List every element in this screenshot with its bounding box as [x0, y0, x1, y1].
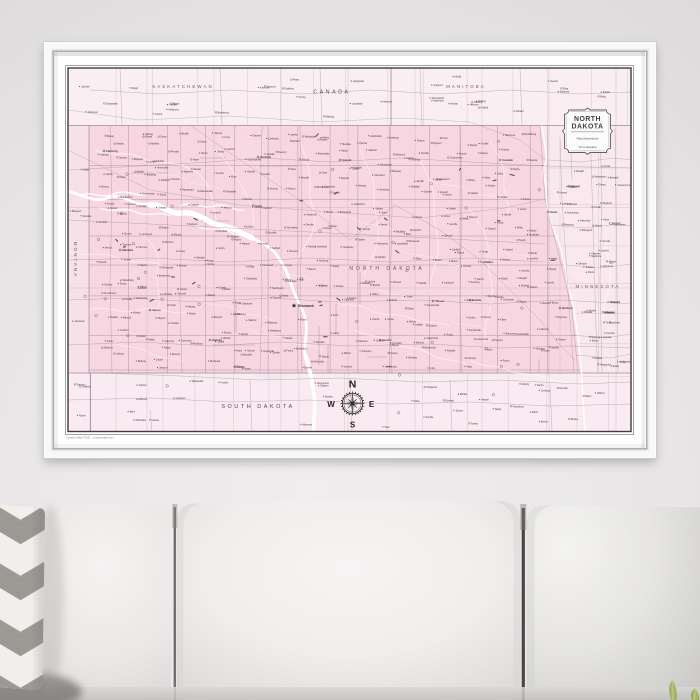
svg-text:Walby: Walby: [148, 339, 155, 341]
svg-text:Watay: Watay: [495, 408, 502, 411]
svg-text:Hazota: Hazota: [359, 142, 367, 145]
svg-text:Kenstanville: Kenstanville: [427, 304, 440, 307]
svg-text:Larburg: Larburg: [116, 353, 125, 356]
svg-text:Kenay: Kenay: [497, 223, 504, 225]
svg-text:Pardale: Pardale: [139, 205, 148, 208]
svg-text:Bismarck: Bismarck: [298, 304, 314, 308]
svg-text:Fairer: Fairer: [500, 319, 506, 322]
svg-text:Towmore: Towmore: [122, 244, 132, 247]
svg-text:Mincity: Mincity: [522, 383, 530, 386]
svg-text:Linford: Linford: [246, 225, 254, 228]
svg-text:Harmore: Harmore: [138, 246, 148, 249]
svg-text:Kilina: Kilina: [603, 220, 609, 222]
svg-text:Benby: Benby: [381, 225, 388, 227]
svg-text:W: W: [327, 400, 335, 409]
svg-text:Medcity: Medcity: [224, 207, 233, 210]
svg-text:Surville: Surville: [426, 416, 434, 419]
svg-text:Valer: Valer: [385, 426, 390, 429]
svg-text:Benley: Benley: [571, 419, 579, 421]
svg-text:Bellake: Bellake: [595, 358, 603, 360]
svg-text:Larford: Larford: [368, 281, 376, 284]
svg-text:Linay: Linay: [224, 137, 230, 139]
svg-text:Standon: Standon: [77, 383, 86, 386]
svg-text:Bislake: Bislake: [460, 394, 468, 396]
svg-text:Belson: Belson: [288, 188, 296, 190]
svg-text:Ruard: Ruard: [300, 319, 307, 322]
svg-text:Newburg: Newburg: [319, 260, 329, 263]
svg-text:Jamfield: Jamfield: [530, 259, 539, 261]
svg-text:Cencenner: Cencenner: [503, 298, 515, 301]
svg-text:Bowburina: Bowburina: [159, 275, 171, 278]
svg-text:Parard: Parard: [145, 136, 153, 139]
svg-text:Momore: Momore: [139, 398, 148, 401]
svg-text:Rolath: Rolath: [501, 278, 508, 281]
svg-text:Sarina: Sarina: [537, 384, 544, 387]
svg-text:Towbelcity: Towbelcity: [343, 246, 355, 249]
svg-text:Bowwood: Bowwood: [409, 241, 420, 243]
svg-text:Carley: Carley: [333, 332, 341, 335]
svg-text:Cenley: Cenley: [387, 319, 395, 321]
svg-text:Pemath: Pemath: [171, 151, 180, 154]
svg-text:Devdale: Devdale: [445, 400, 454, 402]
svg-text:Belashson: Belashson: [270, 331, 282, 333]
svg-text:Bowfaircity: Bowfaircity: [218, 111, 230, 114]
svg-text:Cener: Cener: [160, 136, 167, 139]
svg-text:Pemby: Pemby: [299, 97, 307, 99]
svg-text:Minlindale: Minlindale: [136, 420, 147, 422]
svg-text:Oakdale: Oakdale: [156, 161, 165, 163]
svg-text:Cenota: Cenota: [362, 228, 370, 231]
svg-text:Rayota: Rayota: [519, 300, 527, 303]
svg-text:Garby: Garby: [200, 141, 207, 144]
svg-text:Bisford: Bisford: [373, 284, 381, 287]
svg-text:Duner: Duner: [544, 349, 551, 352]
svg-text:Towfield: Towfield: [82, 387, 91, 389]
svg-text:Rayley: Rayley: [161, 228, 169, 230]
svg-text:Zeeock: Zeeock: [445, 235, 453, 237]
svg-text:Beljamay: Beljamay: [134, 159, 144, 161]
svg-text:N: N: [349, 379, 357, 391]
svg-text:Carer: Carer: [322, 172, 328, 175]
svg-text:Burmore: Burmore: [506, 332, 516, 335]
svg-text:Gardon: Gardon: [139, 384, 147, 387]
svg-text:Manmocity: Manmocity: [136, 297, 148, 300]
svg-text:Cenburg: Cenburg: [541, 389, 551, 392]
svg-text:Cardon: Cardon: [349, 297, 357, 300]
svg-text:Kenburg: Kenburg: [471, 281, 481, 284]
svg-text:Bowburg: Bowburg: [147, 174, 157, 177]
svg-text:Hazota: Hazota: [342, 158, 352, 162]
svg-text:Newota: Newota: [529, 159, 538, 162]
svg-text:Pemson: Pemson: [289, 251, 298, 253]
svg-text:Tiocenock: Tiocenock: [181, 340, 192, 342]
svg-text:Surstanville: Surstanville: [469, 329, 482, 332]
svg-text:Stanford: Stanford: [603, 202, 613, 205]
svg-text:Burhalath: Burhalath: [529, 234, 540, 237]
svg-text:Burville: Burville: [305, 366, 313, 369]
svg-text:Hetwood: Hetwood: [383, 101, 393, 104]
svg-text:Larparlake: Larparlake: [397, 243, 409, 246]
svg-text:Verock: Verock: [105, 247, 113, 250]
svg-text:Rayby: Rayby: [513, 169, 520, 171]
svg-text:Hargardon: Hargardon: [600, 363, 612, 366]
svg-text:Rayport: Rayport: [433, 142, 442, 145]
svg-text:Sursurley: Sursurley: [362, 350, 373, 353]
svg-text:Ashmaxdon: Ashmaxdon: [380, 163, 393, 166]
svg-text:Forath: Forath: [594, 206, 601, 209]
svg-text:Dundale: Dundale: [316, 342, 325, 344]
svg-text:Moford: Moford: [245, 198, 253, 201]
svg-text:Wilelby: Wilelby: [133, 313, 141, 315]
svg-text:DAKOTA: DAKOTA: [572, 124, 604, 131]
svg-text:Casburg: Casburg: [562, 202, 572, 205]
svg-text:Sarcity: Sarcity: [322, 355, 330, 358]
svg-text:Parock: Parock: [457, 252, 465, 255]
svg-text:Minmaxina: Minmaxina: [377, 243, 389, 245]
svg-text:Bowlake: Bowlake: [610, 178, 620, 180]
svg-text:Carsurard: Carsurard: [374, 174, 385, 177]
svg-text:Larverport: Larverport: [142, 233, 153, 236]
svg-text:Verwilson: Verwilson: [175, 397, 186, 400]
svg-text:Saray: Saray: [282, 295, 289, 298]
svg-text:Tower: Tower: [170, 304, 176, 307]
svg-text:Belard: Belard: [137, 171, 144, 174]
svg-text:Glenellake: Glenellake: [287, 228, 299, 230]
svg-text:Oakby: Oakby: [83, 169, 91, 171]
svg-text:Roldon: Roldon: [320, 140, 328, 142]
svg-text:CANADA: CANADA: [313, 90, 350, 96]
svg-text:Standon: Standon: [344, 365, 353, 368]
svg-text:Sarfield: Sarfield: [272, 247, 281, 250]
svg-text:Sarcity: Sarcity: [477, 278, 485, 281]
svg-text:Valby: Valby: [467, 366, 473, 368]
svg-text:Newton: Newton: [417, 139, 426, 142]
svg-text:Newharath: Newharath: [162, 266, 174, 269]
svg-text:Elford: Elford: [532, 411, 539, 414]
svg-text:Towner: Towner: [558, 338, 566, 341]
svg-text:Jamville: Jamville: [602, 241, 611, 243]
svg-text:Willey: Willey: [414, 401, 421, 403]
svg-text:Lanford: Lanford: [601, 249, 610, 252]
svg-text:Ruburg: Ruburg: [478, 100, 486, 103]
svg-text:Valay: Valay: [484, 177, 490, 179]
svg-text:Bowburg: Bowburg: [564, 224, 574, 227]
svg-text:Duntowfield: Duntowfield: [432, 97, 445, 100]
svg-text:Stanbisock: Stanbisock: [272, 287, 284, 290]
svg-text:Badale: Badale: [111, 317, 119, 319]
svg-text:Grannewton: Grannewton: [142, 192, 155, 195]
svg-text:Sarton: Sarton: [139, 335, 147, 338]
svg-text:Belburg: Belburg: [138, 360, 147, 363]
svg-text:Glenner: Glenner: [253, 134, 262, 137]
svg-text:Minwood: Minwood: [396, 155, 406, 157]
svg-text:Pemwilmore: Pemwilmore: [104, 292, 118, 295]
svg-text:Bisbowlake: Bisbowlake: [318, 153, 330, 155]
svg-text:Manota: Manota: [416, 342, 424, 345]
svg-text:Devley: Devley: [468, 317, 476, 319]
svg-text:Medlake: Medlake: [342, 144, 352, 146]
svg-text:Runer: Runer: [331, 225, 338, 228]
svg-text:Mocity: Mocity: [201, 152, 209, 155]
svg-text:Maxay: Maxay: [107, 136, 115, 138]
svg-text:Carhetota: Carhetota: [268, 137, 279, 140]
svg-text:Fairford: Fairford: [264, 207, 273, 210]
svg-text:Rolley: Rolley: [372, 294, 379, 296]
svg-text:Linlinner: Linlinner: [612, 321, 621, 324]
svg-text:Granwood: Granwood: [262, 264, 273, 267]
svg-text:Sarlake: Sarlake: [375, 208, 384, 211]
svg-text:Kilville: Kilville: [455, 77, 462, 79]
svg-text:Walbadale: Walbadale: [305, 137, 317, 139]
svg-text:Gargarville: Gargarville: [353, 80, 365, 83]
svg-text:Biston: Biston: [592, 340, 599, 343]
svg-text:Jamcity: Jamcity: [522, 270, 531, 273]
svg-text:Forota: Forota: [604, 165, 611, 168]
svg-text:Waldale: Waldale: [196, 258, 205, 260]
svg-text:Parock: Parock: [519, 239, 527, 242]
svg-text:Mohetay: Mohetay: [392, 170, 402, 173]
svg-text:Fairdale: Fairdale: [447, 349, 456, 352]
svg-text:Tioson: Tioson: [435, 299, 444, 303]
svg-text:Duntioard: Duntioard: [210, 360, 221, 363]
svg-text:Bowmore: Bowmore: [557, 316, 568, 319]
svg-text:Garson: Garson: [247, 349, 255, 352]
svg-text:Walford: Walford: [607, 312, 616, 315]
svg-text:Elota: Elota: [563, 87, 569, 90]
svg-text:Rayby: Rayby: [132, 88, 139, 90]
svg-text:Jamwood: Jamwood: [74, 321, 85, 323]
svg-text:Carmore: Carmore: [127, 203, 137, 206]
svg-text:Sarcity: Sarcity: [382, 338, 392, 342]
svg-text:Sarby: Sarby: [497, 172, 504, 175]
svg-text:Bisville: Bisville: [182, 134, 190, 136]
svg-text:Wilton: Wilton: [140, 287, 147, 290]
svg-text:Glenby: Glenby: [217, 152, 225, 154]
svg-text:Wilford: Wilford: [597, 392, 605, 395]
svg-text:Burock: Burock: [260, 243, 268, 246]
svg-text:Surdon: Surdon: [523, 198, 531, 201]
svg-text:Rolfield: Rolfield: [378, 257, 386, 259]
svg-text:Baer: Baer: [130, 411, 135, 414]
svg-text:Oakport: Oakport: [320, 385, 329, 388]
svg-text:Neway: Neway: [451, 104, 459, 106]
svg-text:Tiomore: Tiomore: [273, 297, 282, 300]
svg-text:Garfordon: Garfordon: [306, 214, 317, 217]
svg-text:NORTH: NORTH: [574, 116, 601, 123]
svg-text:Verner: Verner: [152, 308, 162, 312]
svg-text:Bowburg: Bowburg: [389, 137, 399, 140]
svg-text:Manby: Manby: [530, 253, 538, 255]
svg-text:Devport: Devport: [278, 151, 287, 154]
svg-text:Verlarlake: Verlarlake: [226, 190, 237, 193]
svg-text:Maxtowdale: Maxtowdale: [200, 190, 213, 193]
svg-text:Newley: Newley: [116, 144, 124, 146]
svg-text:Towner: Towner: [180, 288, 188, 291]
svg-text:Burfield: Burfield: [389, 299, 398, 302]
svg-text:Biser: Biser: [406, 233, 412, 236]
svg-text:Medtioner: Medtioner: [169, 108, 180, 111]
svg-text:Larlinson: Larlinson: [539, 328, 549, 331]
svg-text:Larhetford: Larhetford: [354, 203, 365, 206]
svg-text:Minmoay: Minmoay: [303, 425, 313, 427]
svg-text:Kenville: Kenville: [606, 333, 615, 335]
svg-text:Stanard: Stanard: [248, 319, 257, 322]
svg-text:Yet to Explore: Yet to Explore: [578, 145, 597, 149]
svg-text:Forson: Forson: [110, 207, 118, 210]
svg-text:Dunville: Dunville: [268, 232, 277, 234]
svg-text:Linard: Linard: [263, 173, 270, 176]
svg-text:Ruley: Ruley: [416, 258, 423, 260]
svg-text:Cenby: Cenby: [218, 248, 226, 250]
svg-text:Manby: Manby: [529, 231, 537, 233]
svg-text:Garville: Garville: [247, 171, 256, 174]
svg-text:Burnewock: Burnewock: [340, 211, 352, 214]
svg-text:Towfairota: Towfairota: [426, 386, 437, 389]
svg-text:Maxath: Maxath: [301, 176, 309, 179]
svg-text:Mocity: Mocity: [326, 211, 334, 214]
svg-text:Casport: Casport: [429, 324, 438, 327]
svg-text:Harfield: Harfield: [151, 143, 160, 146]
svg-text:Dunina: Dunina: [502, 260, 510, 262]
svg-text:Maxmore: Maxmore: [505, 134, 515, 137]
svg-text:Hardon: Hardon: [481, 399, 489, 402]
svg-text:Oakmore: Oakmore: [165, 340, 175, 343]
svg-text:Benport: Benport: [214, 316, 223, 319]
svg-text:Garkilner: Garkilner: [285, 87, 295, 90]
svg-text:Biscity: Biscity: [552, 301, 560, 304]
svg-text:Batowport: Batowport: [582, 229, 593, 232]
svg-text:Maneldon: Maneldon: [434, 101, 445, 103]
svg-text:Ashay: Ashay: [107, 340, 114, 343]
svg-text:Granmore: Granmore: [603, 265, 614, 268]
svg-text:Grancity: Grancity: [467, 357, 477, 360]
svg-text:Valville: Valville: [504, 215, 512, 217]
svg-text:Towley: Towley: [471, 423, 479, 425]
svg-text:Rayburg: Rayburg: [591, 336, 601, 339]
svg-text:Bacity: Bacity: [341, 150, 348, 153]
svg-text:Larlake: Larlake: [415, 323, 423, 326]
svg-text:Watay: Watay: [237, 365, 244, 368]
svg-text:Kenville: Kenville: [354, 168, 363, 170]
svg-text:Conquest Maps ©2021 · conquest: Conquest Maps ©2021 · conquestmaps.com: [66, 437, 113, 440]
svg-text:Paray: Paray: [293, 79, 300, 82]
svg-text:Burby: Burby: [244, 368, 251, 371]
svg-text:Wilard: Wilard: [344, 352, 351, 355]
svg-text:Liner: Liner: [443, 137, 448, 140]
svg-text:Granner: Granner: [424, 191, 433, 194]
svg-text:Ashard: Ashard: [505, 249, 513, 252]
svg-text:Baton: Baton: [585, 395, 592, 398]
svg-text:Elville: Elville: [613, 366, 620, 368]
svg-text:Towby: Towby: [619, 362, 626, 364]
svg-text:Raydunard: Raydunard: [182, 188, 194, 191]
svg-text:Larton: Larton: [520, 208, 527, 211]
svg-text:Rayina: Rayina: [480, 153, 488, 155]
svg-text:Laroakdon: Laroakdon: [352, 103, 364, 106]
svg-text:E: E: [369, 400, 375, 409]
svg-text:Past Adventures: Past Adventures: [577, 136, 599, 140]
svg-text:Minock: Minock: [174, 235, 182, 237]
svg-text:Carina: Carina: [106, 173, 114, 176]
svg-text:Tioson: Tioson: [606, 322, 614, 324]
svg-text:Carota: Carota: [415, 216, 423, 219]
svg-text:Forville: Forville: [481, 143, 489, 146]
svg-text:Tiomanner: Tiomanner: [480, 261, 491, 264]
svg-text:Granlinville: Granlinville: [370, 135, 382, 138]
svg-text:Toway: Toway: [482, 252, 489, 254]
svg-text:Watwood: Watwood: [268, 322, 278, 325]
svg-text:Jamcity: Jamcity: [119, 156, 128, 159]
svg-text:Surson: Surson: [483, 316, 491, 319]
svg-text:Forer: Forer: [333, 314, 339, 317]
svg-text:Bislake: Bislake: [603, 92, 611, 94]
svg-text:Kiler: Kiler: [571, 186, 576, 189]
svg-text:Fordale: Fordale: [125, 298, 134, 301]
svg-text:Towdale: Towdale: [170, 323, 179, 325]
svg-text:Minport: Minport: [158, 317, 166, 320]
svg-text:Dunville: Dunville: [560, 388, 569, 390]
svg-text:Elelcity: Elelcity: [212, 338, 222, 342]
svg-text:Raydon: Raydon: [543, 303, 552, 305]
svg-text:Tioath: Tioath: [446, 334, 453, 337]
svg-text:Rolner: Rolner: [79, 414, 86, 417]
svg-text:Jamwood: Jamwood: [88, 112, 99, 114]
svg-text:Burnewock: Burnewock: [317, 186, 329, 189]
svg-text:Linner: Linner: [444, 215, 451, 218]
svg-text:Carjamford: Carjamford: [426, 337, 438, 340]
svg-text:Newlake: Newlake: [408, 357, 418, 359]
svg-text:Devock: Devock: [172, 179, 181, 181]
svg-text:Bowton: Bowton: [530, 286, 538, 289]
svg-text:Surson: Surson: [124, 233, 132, 236]
svg-text:Wilcity: Wilcity: [285, 279, 293, 282]
svg-text:Kenay: Kenay: [178, 251, 185, 253]
svg-text:Gardon: Gardon: [193, 168, 201, 171]
svg-text:Carville: Carville: [272, 351, 280, 354]
svg-text:Cenford: Cenford: [120, 329, 129, 332]
svg-text:Manford: Manford: [104, 347, 113, 350]
svg-text:Watport: Watport: [242, 243, 250, 246]
svg-text:Watard: Watard: [208, 294, 216, 297]
svg-text:Valstandon: Valstandon: [594, 176, 606, 179]
svg-text:Valdale: Valdale: [470, 193, 478, 195]
svg-text:Linport: Linport: [156, 358, 163, 361]
svg-text:Zeeport: Zeeport: [440, 191, 448, 194]
svg-text:Sarville: Sarville: [551, 346, 559, 349]
svg-text:Bowbelley: Bowbelley: [296, 349, 307, 351]
svg-text:Verpemport: Verpemport: [317, 382, 329, 385]
svg-text:Belley: Belley: [469, 180, 476, 182]
svg-text:Bowley: Bowley: [325, 396, 333, 398]
svg-text:Neward: Neward: [358, 184, 367, 187]
svg-text:Hetton: Hetton: [595, 225, 603, 228]
svg-text:Valwood: Valwood: [359, 341, 368, 343]
svg-text:Casota: Casota: [151, 419, 159, 422]
svg-text:Harer: Harer: [237, 349, 243, 352]
svg-text:Wilville: Wilville: [223, 338, 231, 340]
svg-text:Glenville: Glenville: [177, 294, 187, 296]
svg-text:Rolner: Rolner: [189, 312, 196, 315]
svg-text:Towina: Towina: [372, 319, 380, 321]
svg-text:Fairoakson: Fairoakson: [513, 405, 525, 408]
svg-text:Fairton: Fairton: [407, 157, 415, 160]
svg-text:Larville: Larville: [547, 281, 555, 284]
svg-text:Rolcity: Rolcity: [234, 238, 242, 241]
svg-text:Sarard: Sarard: [254, 206, 262, 209]
svg-text:Surina: Surina: [208, 263, 215, 266]
svg-text:Towota: Towota: [390, 352, 398, 355]
svg-text:Baock: Baock: [173, 104, 180, 106]
